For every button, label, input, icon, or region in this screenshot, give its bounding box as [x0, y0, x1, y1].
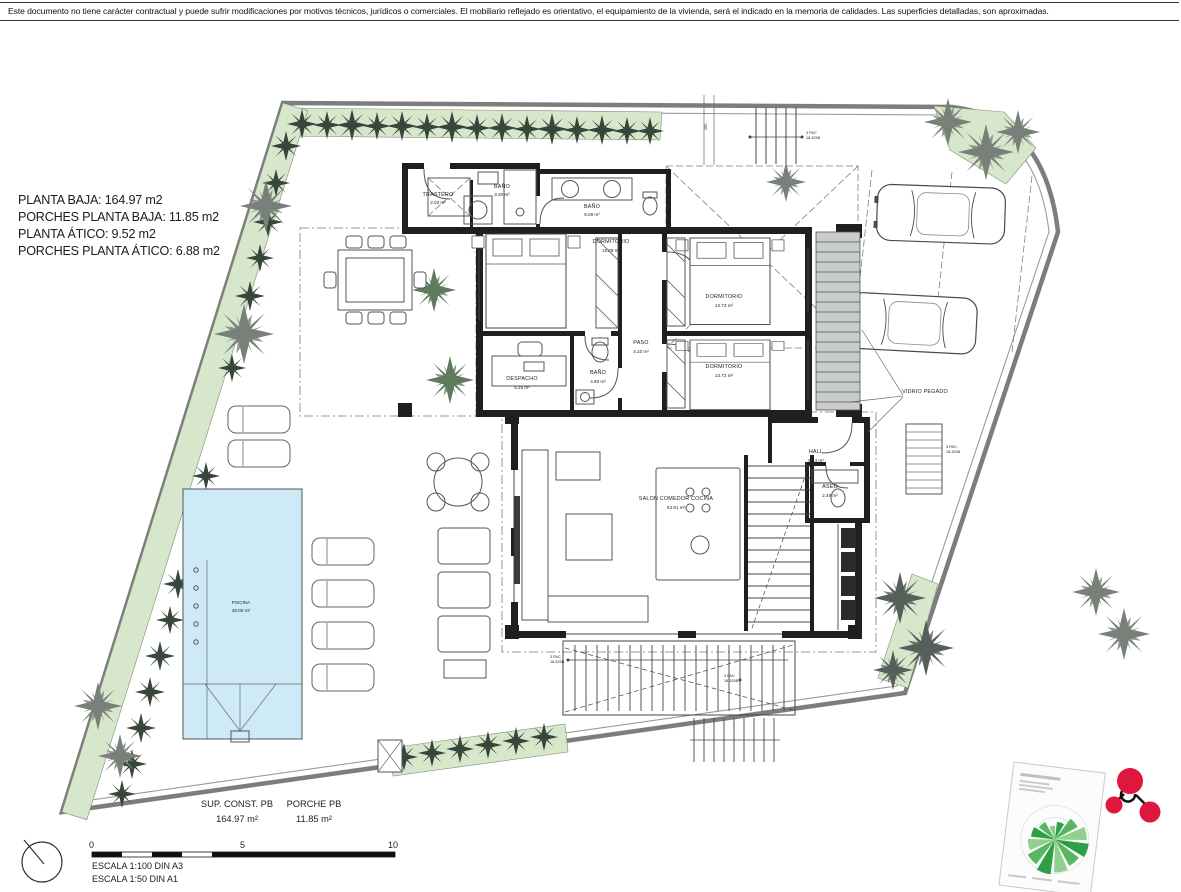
floor-plan-page: Este documento no tiene carácter contrac…	[0, 0, 1181, 892]
pergola-side	[816, 232, 860, 410]
svg-text:DORMITORIO: DORMITORIO	[593, 239, 630, 245]
bed-dorm-top	[676, 238, 784, 324]
svg-text:VIDRIO PEGADO: VIDRIO PEGADO	[902, 389, 948, 395]
porche-label: PORCHE PB	[287, 799, 342, 809]
svg-text:4.10 m²: 4.10 m²	[633, 349, 649, 354]
svg-text:3 PAC: 3 PAC	[946, 445, 957, 449]
svg-text:ASEO: ASEO	[822, 484, 838, 490]
wind-rose-card	[999, 762, 1105, 892]
room-label-piscina: PISCINA	[232, 600, 251, 605]
room-area-piscina: 30.00 m²	[232, 608, 251, 613]
svg-text:DORMITORIO: DORMITORIO	[706, 364, 743, 370]
escala-line1: ESCALA 1:100 DIN A3	[92, 861, 183, 871]
svg-text:DESPACHO: DESPACHO	[506, 376, 537, 382]
svg-text:PASO: PASO	[633, 340, 648, 346]
svg-text:3.30 m²: 3.30 m²	[494, 192, 510, 197]
svg-text:BAÑO: BAÑO	[590, 369, 606, 376]
svg-text:2.49 m²: 2.49 m²	[822, 493, 838, 498]
svg-text:0: 0	[89, 840, 94, 850]
svg-text:HALL: HALL	[809, 449, 823, 455]
svg-text:15.28 m²: 15.28 m²	[602, 248, 621, 253]
svg-text:BAÑO: BAÑO	[584, 203, 600, 210]
svg-text:3 PAC: 3 PAC	[724, 674, 735, 678]
swimming-pool: PISCINA 30.00 m²	[183, 489, 302, 742]
svg-text:TRASTERO: TRASTERO	[423, 192, 454, 198]
bed-master	[472, 234, 580, 328]
svg-text:13.73 m²: 13.73 m²	[715, 373, 734, 378]
svg-text:250: 250	[704, 124, 708, 130]
svg-text:8.25 m²: 8.25 m²	[514, 385, 530, 390]
svg-text:5: 5	[240, 840, 245, 850]
floor-plan-svg: PISCINA 30.00 m²	[0, 0, 1181, 892]
svg-text:3 PAC: 3 PAC	[806, 131, 817, 135]
svg-text:2.03 m²: 2.03 m²	[430, 200, 446, 205]
porche-value: 11.85 m²	[296, 814, 332, 824]
molecule-logo	[1106, 768, 1161, 823]
svg-text:5.44 m²: 5.44 m²	[808, 458, 824, 463]
stairs-exterior-right	[690, 718, 780, 762]
svg-text:DORMITORIO: DORMITORIO	[706, 294, 743, 300]
svg-text:6.08 m²: 6.08 m²	[584, 212, 600, 217]
sup-const-label: SUP. CONST. PB	[201, 799, 273, 809]
svg-text:18.325B: 18.325B	[550, 660, 565, 664]
svg-text:18.325B: 18.325B	[806, 136, 821, 140]
escala-line2: ESCALA 1:50 DIN A1	[92, 874, 178, 884]
svg-text:18.325B: 18.325B	[946, 450, 961, 454]
footer-areas: SUP. CONST. PB 164.97 m² PORCHE PB 11.85…	[201, 799, 341, 824]
scale-bar: 0 5 10 ESCALA 1:100 DIN A3 ESCALA 1:50 D…	[89, 840, 398, 884]
svg-text:3 PAC: 3 PAC	[550, 655, 561, 659]
svg-text:BAÑO: BAÑO	[494, 183, 510, 190]
utility-box	[378, 740, 402, 772]
svg-text:18.325B: 18.325B	[724, 679, 739, 683]
svg-text:13.73 m²: 13.73 m²	[715, 303, 734, 308]
north-symbol	[22, 840, 62, 882]
svg-text:4.80 m²: 4.80 m²	[590, 379, 606, 384]
svg-text:SALON COMEDOR COCINA: SALON COMEDOR COCINA	[639, 496, 714, 502]
svg-text:53.81 m²: 53.81 m²	[667, 505, 686, 510]
svg-text:10: 10	[388, 840, 398, 850]
sup-const-value: 164.97 m²	[216, 814, 258, 824]
